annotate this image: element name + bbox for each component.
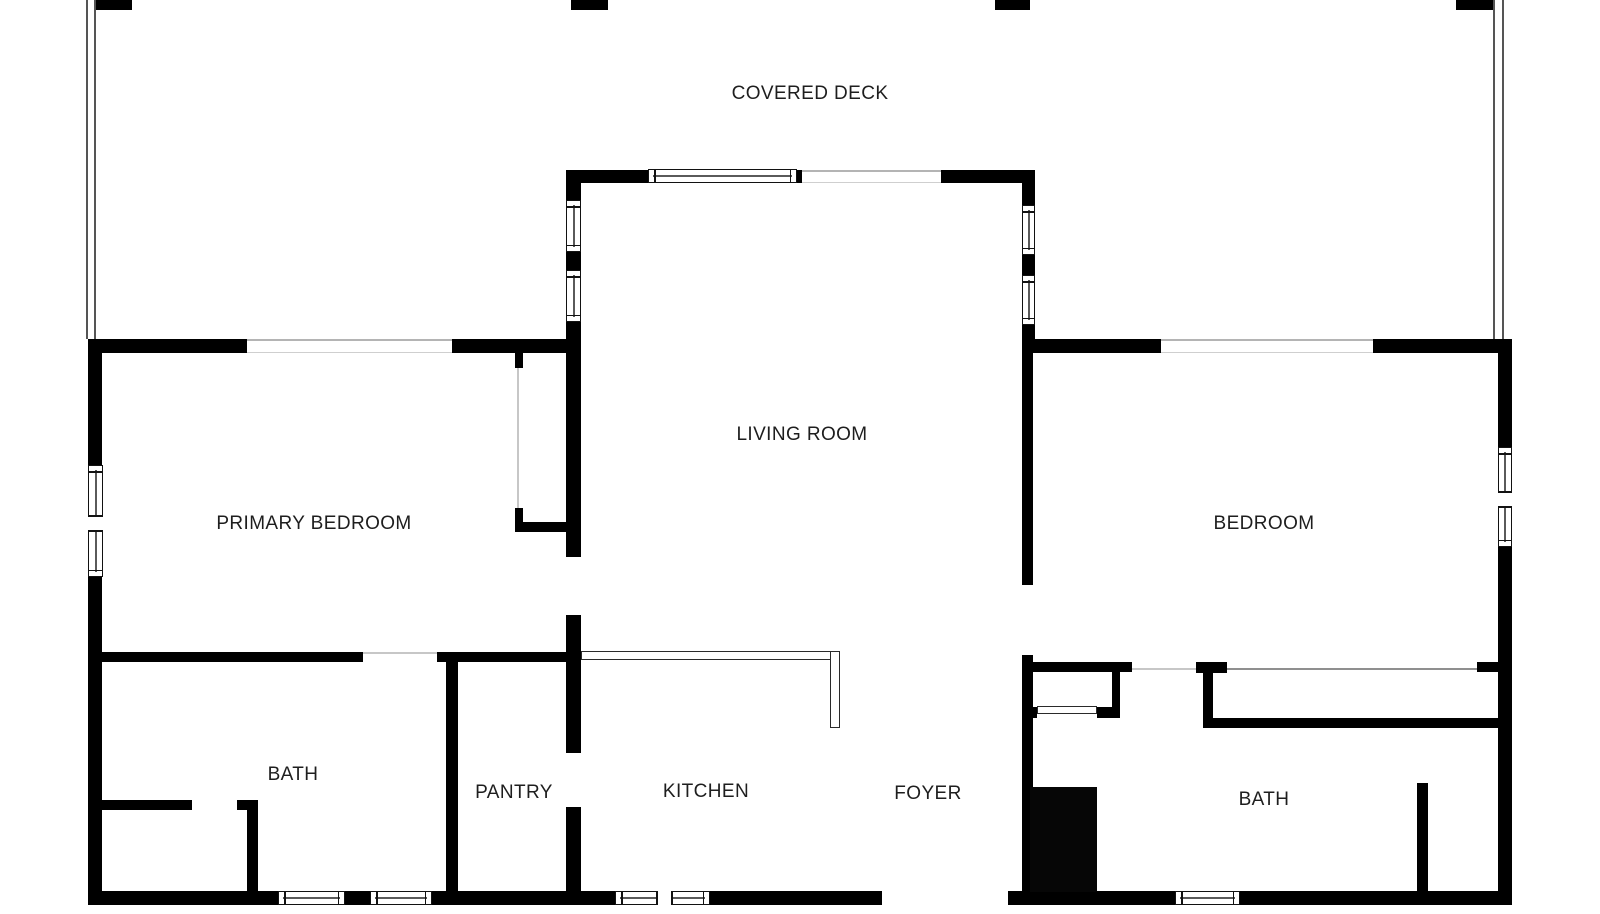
room-label-bath-left: BATH [268,764,319,786]
room-label-foyer: FOYER [894,783,961,805]
bath-left-bottom-window-1 [278,891,345,905]
wall-segment [941,170,1035,183]
living-room-left-window-2 [566,270,581,322]
kitchen-counter-side [830,651,840,728]
glazing-band-line [802,170,941,172]
deck-post [1456,0,1493,10]
bedroom-right-window [1498,447,1512,547]
wall-segment [1022,339,1161,353]
glazing-band-line [247,352,452,354]
living-room-right-window-2 [1022,275,1035,325]
glazing-band [1161,339,1373,353]
window-frame-cap [790,170,792,182]
wall-segment [566,252,581,270]
window-frame-cap [1499,540,1511,542]
door-opening-line [517,368,519,508]
wall-segment [432,891,615,905]
wall-segment [452,339,581,353]
wall-segment [345,891,370,905]
glazing-band [247,339,452,353]
room-label-bedroom: BEDROOM [1214,513,1315,535]
bath-right-bottom-window [1175,891,1240,905]
wall-segment [566,615,581,753]
room-label-covered-deck: COVERED DECK [732,83,889,105]
window-frame-cap [1023,281,1034,283]
wall-segment [1022,707,1037,718]
deck-post [95,0,132,10]
wall-segment [247,810,258,892]
wall-segment [102,800,192,810]
wall-segment [566,322,581,352]
wall-segment [237,800,258,810]
wall-segment [437,652,581,662]
wall-segment [566,183,581,200]
wall-segment [1022,255,1035,275]
floor-plan-canvas: COVERED DECKLIVING ROOMPRIMARY BEDROOMBE… [0,0,1600,914]
door-opening-line [363,652,437,654]
glazing-band-line [247,339,452,341]
window-frame-cap [621,892,623,904]
wall-segment [515,522,577,532]
wall-segment [710,891,882,905]
window-frame-cap [1181,892,1183,904]
window-glass-line [283,897,340,899]
window-glass-line [573,275,575,317]
wall-segment [566,170,648,183]
kitchen-counter-top [581,651,840,660]
room-label-pantry: PANTRY [475,782,553,804]
window-frame-cap [1233,892,1235,904]
wall-segment [88,339,102,465]
glazing-band-line [1161,339,1373,341]
window-frame-cap [89,471,102,473]
deck-railing-line [94,0,96,339]
window-frame-cap [654,170,656,182]
deck-railing-line [1493,0,1495,339]
window-glass-line [573,205,575,247]
deck-post [995,0,1030,10]
window-frame-cap [567,245,580,247]
window-frame-cap [376,892,378,904]
room-label-kitchen: KITCHEN [663,781,749,803]
wall-segment [1477,662,1498,672]
window-divider [1498,491,1512,508]
window-frame-cap [89,570,102,572]
window-divider [656,891,673,905]
window-divider [88,515,103,532]
window-glass-line [1028,280,1030,320]
window-frame-cap [567,206,580,208]
living-room-left-window-1 [566,200,581,252]
window-frame-cap [567,315,580,317]
wall-segment [1008,891,1175,905]
primary-bedroom-left-window [88,465,103,577]
door-opening-line [1132,668,1196,670]
wall-segment [102,652,363,662]
wall-segment [88,891,278,905]
room-label-bath-right: BATH [1239,789,1290,811]
window-glass-line [653,175,792,177]
kitchen-bottom-window [615,891,710,905]
hall-closet-door [1037,706,1097,714]
wall-segment [88,577,102,905]
wall-segment [1022,352,1033,585]
window-glass-line [1180,897,1235,899]
deck-post [571,0,608,10]
wall-segment [515,352,523,368]
foyer-solid-mass [1030,787,1097,892]
living-room-top-window [648,169,797,183]
glazing-band-line [802,182,941,184]
wall-segment [1498,547,1512,905]
door-opening-line [1227,668,1477,670]
wall-segment [1097,707,1120,718]
window-glass-line [1028,210,1030,250]
glazing-band-line [1161,352,1373,354]
window-frame-cap [1023,211,1034,213]
deck-railing-line [86,0,88,339]
window-frame-cap [1023,318,1034,320]
glazing-band [802,170,941,183]
window-glass-line [375,897,427,899]
window-frame-cap [338,892,340,904]
wall-segment [1022,183,1035,205]
room-label-primary-bedroom: PRIMARY BEDROOM [216,513,411,535]
window-frame-cap [703,892,705,904]
wall-segment [1022,325,1035,352]
wall-segment [1417,783,1428,892]
wall-segment [1240,891,1512,905]
window-frame-cap [425,892,427,904]
window-frame-cap [1023,248,1034,250]
wall-segment [1498,339,1512,447]
wall-segment [1373,339,1512,353]
wall-segment [446,652,458,905]
wall-segment [88,339,247,353]
living-room-right-window-1 [1022,205,1035,255]
room-label-living-room: LIVING ROOM [736,424,867,446]
window-frame-cap [1499,453,1511,455]
window-frame-cap [284,892,286,904]
wall-segment [1203,718,1498,728]
wall-segment [566,807,581,905]
bath-left-bottom-window-2 [370,891,432,905]
window-frame-cap [567,276,580,278]
deck-railing-line [1502,0,1504,339]
